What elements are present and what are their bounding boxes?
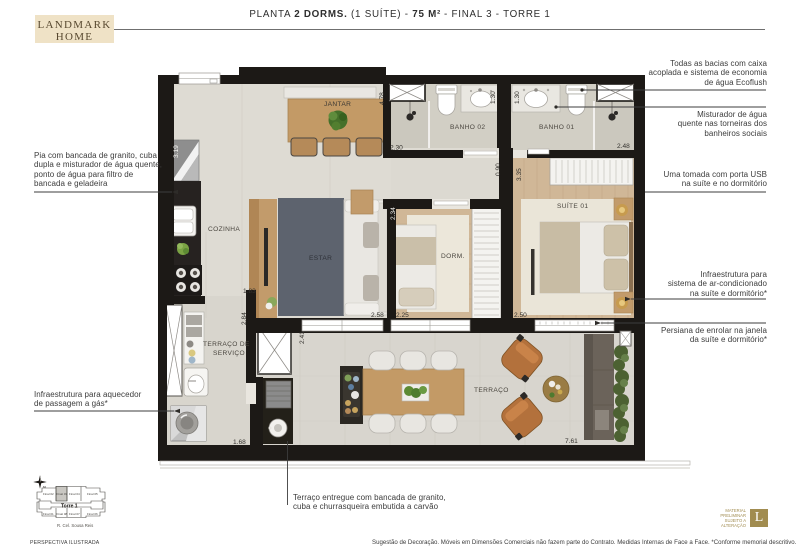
svg-text:2.48: 2.48 xyxy=(617,143,630,150)
svg-text:Final 06: Final 06 xyxy=(87,512,98,516)
svg-text:1.30: 1.30 xyxy=(514,91,521,104)
svg-text:2.34: 2.34 xyxy=(390,207,397,220)
svg-text:2.25: 2.25 xyxy=(396,312,409,319)
svg-text:Final 07: Final 07 xyxy=(69,512,80,516)
svg-text:Final 03: Final 03 xyxy=(57,492,68,496)
svg-text:Final 04: Final 04 xyxy=(69,492,80,496)
svg-text:1.83: 1.83 xyxy=(243,288,256,295)
svg-text:Final 08: Final 08 xyxy=(57,512,68,516)
svg-text:3.35: 3.35 xyxy=(516,168,523,181)
svg-text:2.41: 2.41 xyxy=(299,331,306,344)
svg-text:Final 02: Final 02 xyxy=(43,492,54,496)
svg-text:2.84: 2.84 xyxy=(241,312,248,325)
svg-text:BANHO 02: BANHO 02 xyxy=(450,124,485,131)
svg-text:2.58: 2.58 xyxy=(371,312,384,319)
svg-text:3.19: 3.19 xyxy=(173,145,180,158)
svg-text:SUÍTE 01: SUÍTE 01 xyxy=(557,201,588,210)
svg-text:ESTAR: ESTAR xyxy=(309,255,332,262)
svg-text:7.61: 7.61 xyxy=(565,438,578,445)
svg-text:TERRAÇO DE: TERRAÇO DE xyxy=(203,341,250,348)
svg-text:SERVIÇO: SERVIÇO xyxy=(213,350,245,357)
svg-text:1.68: 1.68 xyxy=(233,439,246,446)
svg-text:JANTAR: JANTAR xyxy=(324,101,351,108)
svg-text:2.50: 2.50 xyxy=(514,312,527,319)
svg-text:Final 01: Final 01 xyxy=(43,512,54,516)
svg-text:4.78: 4.78 xyxy=(379,92,386,105)
svg-text:COZINHA: COZINHA xyxy=(208,226,240,233)
svg-text:Final 05: Final 05 xyxy=(87,492,98,496)
svg-text:TERRAÇO: TERRAÇO xyxy=(474,387,509,394)
svg-text:2.30: 2.30 xyxy=(390,145,403,152)
svg-text:1.30: 1.30 xyxy=(490,91,497,104)
svg-text:DORM.: DORM. xyxy=(441,253,465,260)
svg-text:Torre 1: Torre 1 xyxy=(61,504,78,510)
svg-text:BANHO 01: BANHO 01 xyxy=(539,124,574,131)
svg-text:0.90: 0.90 xyxy=(495,163,502,176)
